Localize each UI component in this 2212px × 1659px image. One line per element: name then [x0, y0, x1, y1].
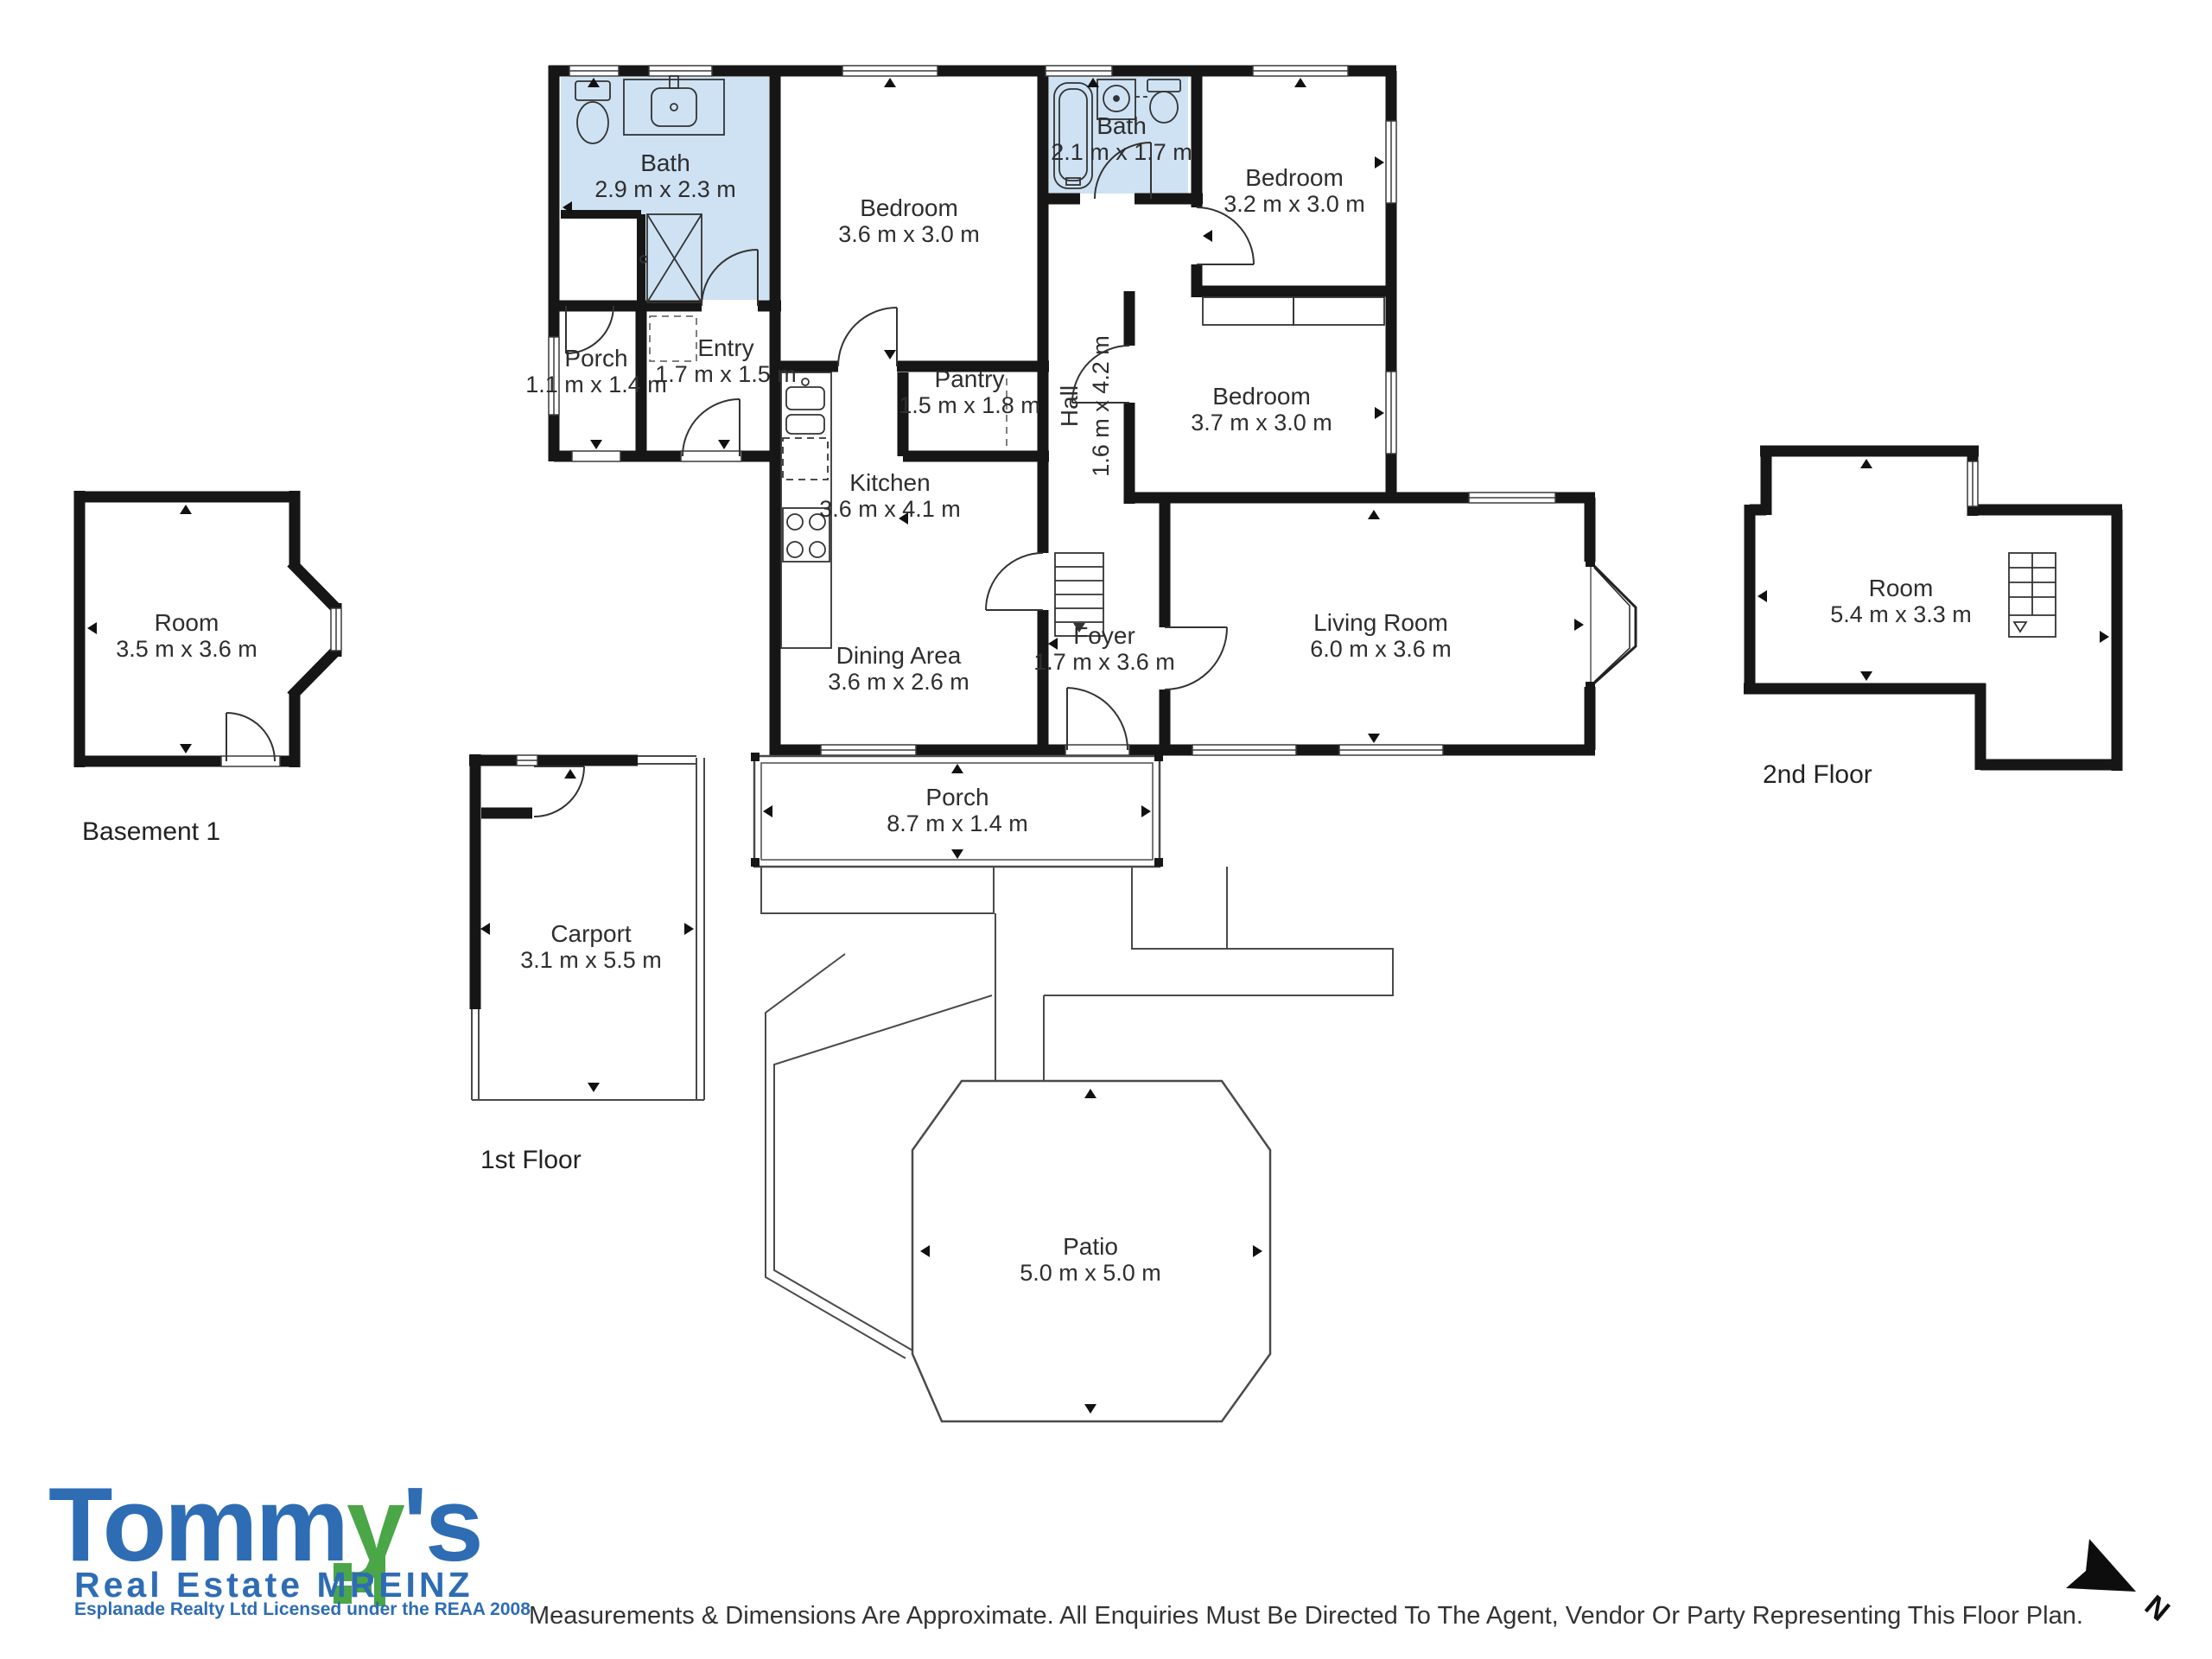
- room-label-dining-name: Dining Area: [836, 642, 962, 669]
- room-label-kitchen-dims: 3.6 m x 4.1 m: [819, 496, 961, 522]
- door-entry: [683, 399, 740, 456]
- door-foyer-front: [1067, 688, 1128, 750]
- room-label-carport-dims: 3.1 m x 5.5 m: [520, 947, 662, 973]
- porch-step: [761, 867, 994, 913]
- room-label-second-name: Room: [1869, 575, 1934, 601]
- bay-window: [1586, 556, 1636, 692]
- room-label-living-name: Living Room: [1313, 609, 1448, 636]
- walls-closet: [561, 214, 641, 306]
- room-label-pantry-dims: 1.5 m x 1.8 m: [899, 392, 1040, 418]
- room-label-bedroom3-name: Bedroom: [1212, 383, 1311, 410]
- room-label-entry-name: Entry: [697, 334, 753, 361]
- room-label-bedroom1-name: Bedroom: [860, 194, 958, 221]
- compass-north-label: N: [2139, 1589, 2176, 1628]
- floor-plan-svg: Bath 2.9 m x 2.3 m Porch 1.1 m x 1.4 m E…: [0, 0, 2212, 1659]
- agency-logo-tagline: Esplanade Realty Ltd Licensed under the …: [74, 1599, 531, 1620]
- agency-logo: Tommy's Real Estate MREINZ Esplanade Rea…: [48, 1471, 515, 1618]
- room-label-bath2-dims: 2.1 m x 1.7 m: [1051, 139, 1192, 165]
- room-label-kitchen-name: Kitchen: [849, 469, 930, 496]
- room-label-foyer-name: Foyer: [1073, 622, 1135, 649]
- agency-logo-wordmark: Tommy's: [48, 1471, 481, 1577]
- room-label-basement-dims: 3.5 m x 3.6 m: [116, 636, 257, 662]
- porch-and-paths: [751, 753, 1393, 1421]
- room-label-pantry-name: Pantry: [935, 365, 1005, 392]
- room-label-living-dims: 6.0 m x 3.6 m: [1310, 636, 1452, 662]
- room-label-carport-name: Carport: [550, 920, 632, 947]
- room-label-porch1-dims: 1.1 m x 1.4 m: [525, 372, 667, 397]
- room-label-patio-dims: 5.0 m x 5.0 m: [1020, 1260, 1161, 1286]
- room-label-bath2-name: Bath: [1096, 112, 1147, 139]
- door-carport: [534, 766, 584, 817]
- room-label-bedroom3-dims: 3.7 m x 3.0 m: [1191, 410, 1332, 435]
- room-label-porch1-name: Porch: [564, 345, 627, 372]
- room-label-entry-dims: 1.7 m x 1.5 m: [655, 361, 797, 387]
- floor-plan-page: Bath 2.9 m x 2.3 m Porch 1.1 m x 1.4 m E…: [0, 0, 2212, 1659]
- room-label-dining-dims: 3.6 m x 2.6 m: [828, 669, 969, 695]
- room-label-bedroom1-dims: 3.6 m x 3.0 m: [838, 221, 980, 247]
- room-label-hall-name: Hall: [1056, 385, 1083, 427]
- room-label-second-dims: 5.4 m x 3.3 m: [1830, 601, 1972, 627]
- wardrobe: [1203, 297, 1384, 325]
- door-basement: [226, 713, 275, 761]
- room-label-bedroom2-dims: 3.2 m x 3.0 m: [1224, 191, 1365, 217]
- door-kitchen: [986, 553, 1043, 610]
- room-label-foyer-dims: 1.7 m x 3.6 m: [1033, 649, 1175, 675]
- room-label-bath1-dims: 2.9 m x 2.3 m: [594, 176, 736, 202]
- room-label-basement-name: Room: [155, 609, 219, 636]
- floor-label-basement: Basement 1: [82, 817, 220, 846]
- room-label-bath1-name: Bath: [640, 149, 690, 176]
- room-label-porch2-dims: 8.7 m x 1.4 m: [887, 810, 1028, 836]
- door-bedroom1: [838, 308, 897, 366]
- room-label-hall-dims: 1.6 m x 4.2 m: [1088, 335, 1114, 477]
- room-label-bedroom2-name: Bedroom: [1245, 164, 1344, 191]
- entry-closet: [650, 316, 696, 361]
- dishwasher: [783, 438, 828, 480]
- room-label-patio-name: Patio: [1063, 1233, 1118, 1260]
- floor-label-first: 1st Floor: [480, 1146, 582, 1174]
- disclaimer-text: Measurements & Dimensions Are Approximat…: [529, 1602, 2083, 1630]
- stairs-second: [2009, 553, 2056, 637]
- room-label-porch2-name: Porch: [925, 784, 988, 810]
- floor-label-second: 2nd Floor: [1763, 760, 1872, 789]
